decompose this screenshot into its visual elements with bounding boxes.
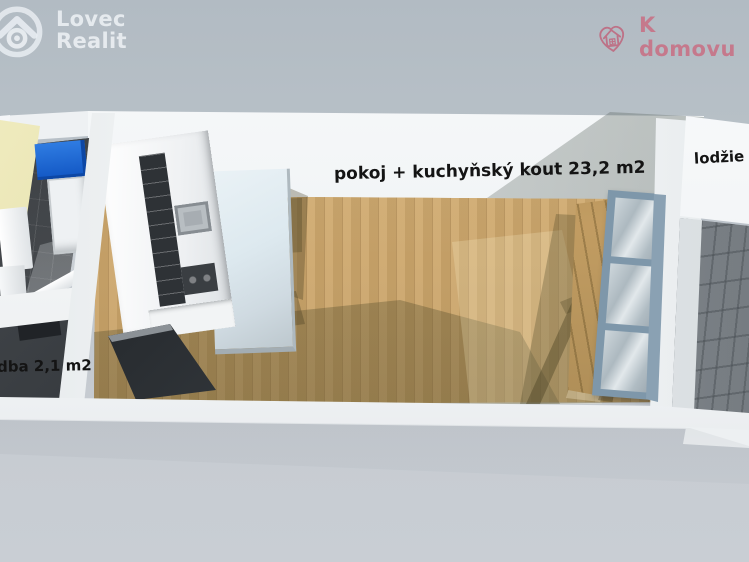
- lovec-realit-text: Lovec Realit: [56, 9, 127, 53]
- floorplan-render: pokoj + kuchyňský kout 23,2 m2 lodžie 4 …: [0, 0, 749, 562]
- k-domovu-logo: K domovu: [594, 13, 749, 61]
- room-label-loggia: lodžie 4: [694, 146, 749, 167]
- lovec-realit-logo: Lovec Realit: [0, 2, 127, 60]
- lovec-realit-line1: Lovec: [56, 9, 127, 31]
- shower-top: [35, 140, 88, 180]
- kitchen-hob: [181, 263, 219, 295]
- lovec-realit-icon: [0, 2, 46, 60]
- kitchen-sink: [174, 201, 212, 235]
- k-domovu-icon: [592, 19, 631, 56]
- room-label-hall: dba 2,1 m2: [0, 356, 92, 376]
- k-domovu-text: K domovu: [639, 13, 749, 61]
- door-glass-pane: [606, 264, 657, 327]
- door-glass-pane: [601, 330, 652, 393]
- lovec-realit-line2: Realit: [56, 31, 127, 53]
